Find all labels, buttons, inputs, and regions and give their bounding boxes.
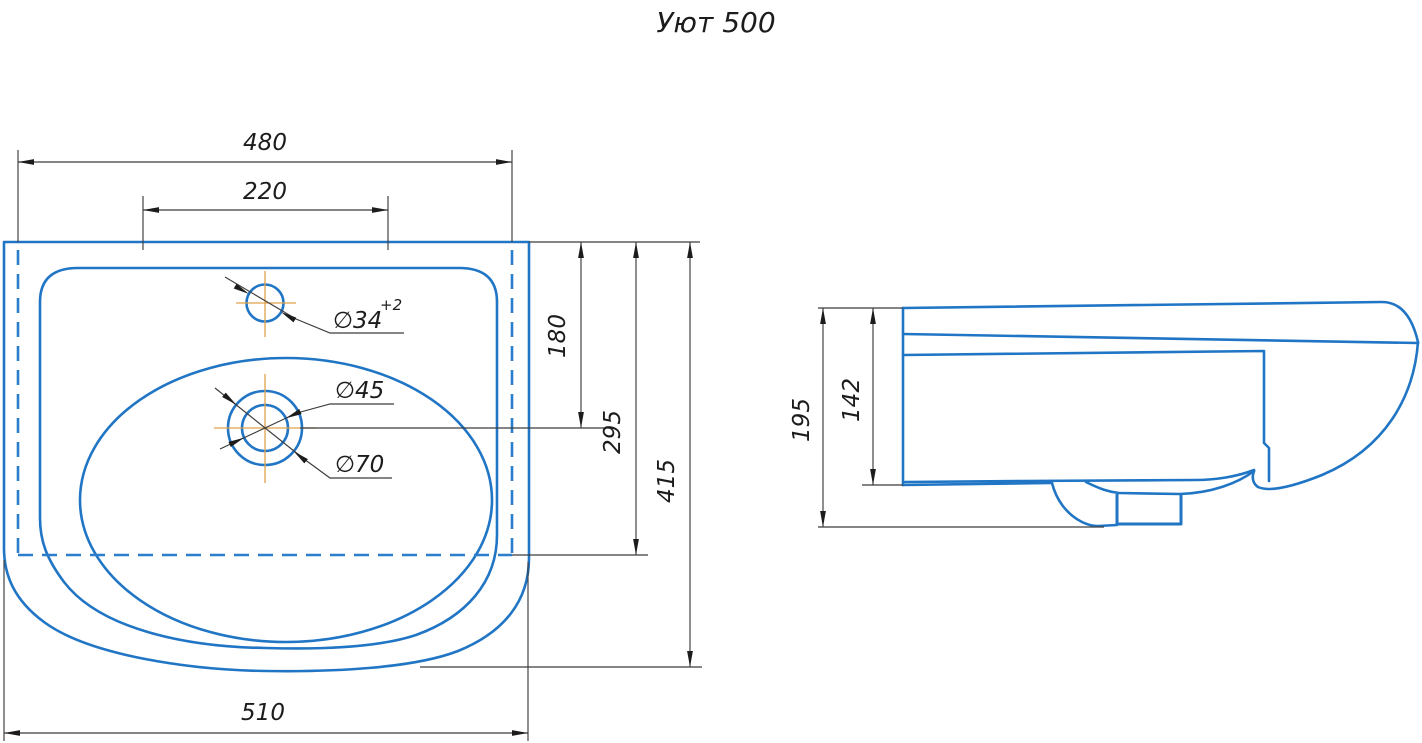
dim-arrowhead <box>633 242 639 258</box>
dim-label-depth-415: 415 <box>654 459 680 503</box>
dim-arrowhead <box>820 511 826 527</box>
side-rim-line <box>903 334 1418 343</box>
dimension-labels: Уют 500480220180295415510195142∅34+2∅45∅… <box>241 6 865 726</box>
side-front-face <box>1253 342 1418 489</box>
dim-arrowhead <box>512 730 528 736</box>
dim-arrowhead <box>143 207 159 213</box>
dim-arrowhead <box>372 207 388 213</box>
side-bowl-bottom <box>905 470 1254 482</box>
side-body-bottom <box>903 483 1052 485</box>
leader-arrowhead <box>234 284 249 294</box>
drawing-title: Уют 500 <box>656 6 775 39</box>
dim-label-faucet-dia: ∅34 <box>333 308 382 334</box>
dim-label-faucet-tol: +2 <box>380 296 402 314</box>
dim-label-depth-180: 180 <box>545 314 571 358</box>
dim-label-drain-inner-dia: ∅45 <box>335 378 384 404</box>
dim-label-drain-outer-dia: ∅70 <box>335 452 384 478</box>
side-basin-line <box>903 351 1269 481</box>
dim-label-height-body: 142 <box>839 378 865 422</box>
side-drain-boss <box>1117 494 1181 524</box>
dim-arrowhead <box>578 412 584 428</box>
dimension-lines <box>4 150 1104 741</box>
dim-arrowhead <box>870 469 876 485</box>
side-trap-top-line <box>1086 471 1254 494</box>
technical-drawing: Уют 500480220180295415510195142∅34+2∅45∅… <box>0 0 1422 743</box>
dimension-arrowheads <box>4 159 876 736</box>
plan-view <box>4 242 529 671</box>
dim-arrowhead <box>633 539 639 555</box>
leader-arrowhead <box>281 312 296 322</box>
plan-bowl-ellipse <box>80 358 492 642</box>
dim-arrowhead <box>820 308 826 324</box>
plan-outer-body-outline <box>4 242 529 671</box>
dim-label-height-total: 195 <box>789 398 815 442</box>
dim-arrowhead <box>496 159 512 165</box>
dim-arrowhead <box>687 651 693 667</box>
dim-arrowhead <box>18 159 34 165</box>
dim-arrowhead <box>578 242 584 258</box>
side-view <box>903 302 1418 526</box>
leader-arrowhead <box>222 393 236 405</box>
faucet-centerlines <box>236 271 296 337</box>
dim-label-width-bottom: 510 <box>241 700 285 726</box>
dim-arrowhead <box>687 242 693 258</box>
leader-arrowhead <box>294 451 308 463</box>
plan-basin-rim <box>40 268 497 649</box>
drawing-canvas: Уют 500480220180295415510195142∅34+2∅45∅… <box>0 0 1422 743</box>
dim-arrowhead <box>4 730 20 736</box>
dim-label-hole-spacing: 220 <box>243 179 287 205</box>
dim-label-width-top: 480 <box>243 130 287 156</box>
dim-label-depth-295: 295 <box>600 410 626 454</box>
dim-arrowhead <box>870 308 876 324</box>
